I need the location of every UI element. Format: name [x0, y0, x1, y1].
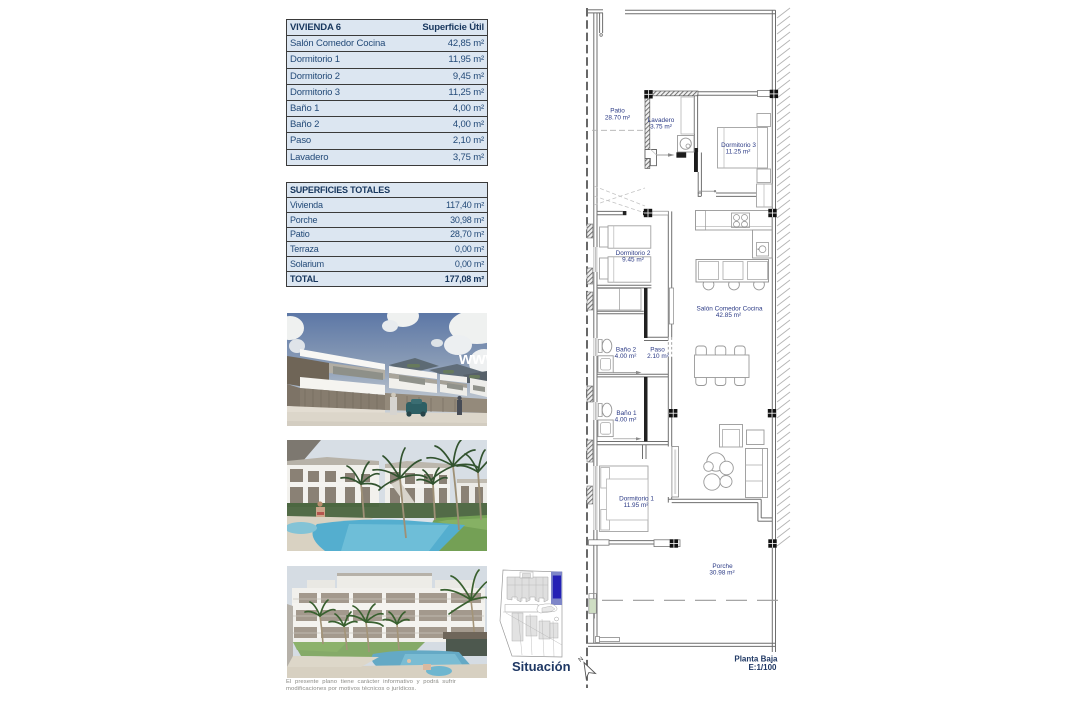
svg-text:4.00 m²: 4.00 m²: [615, 353, 637, 360]
svg-text:11.95 m²: 11.95 m²: [624, 502, 649, 509]
svg-text:42.85 m²: 42.85 m²: [716, 312, 741, 319]
svg-text:www: www: [458, 349, 487, 368]
svg-text:11.25 m²: 11.25 m²: [726, 149, 751, 156]
svg-text:E:1/100: E:1/100: [748, 663, 777, 672]
svg-text:4.00 m²: 4.00 m²: [615, 417, 637, 424]
svg-text:9.45 m²: 9.45 m²: [622, 257, 644, 264]
svg-text:30.98 m²: 30.98 m²: [709, 570, 734, 577]
svg-text:3.75 m²: 3.75 m²: [650, 124, 672, 131]
svg-text:Planta Baja: Planta Baja: [734, 655, 778, 664]
svg-text:2.10 m²: 2.10 m²: [647, 353, 669, 360]
svg-text:28.70 m²: 28.70 m²: [605, 114, 630, 121]
